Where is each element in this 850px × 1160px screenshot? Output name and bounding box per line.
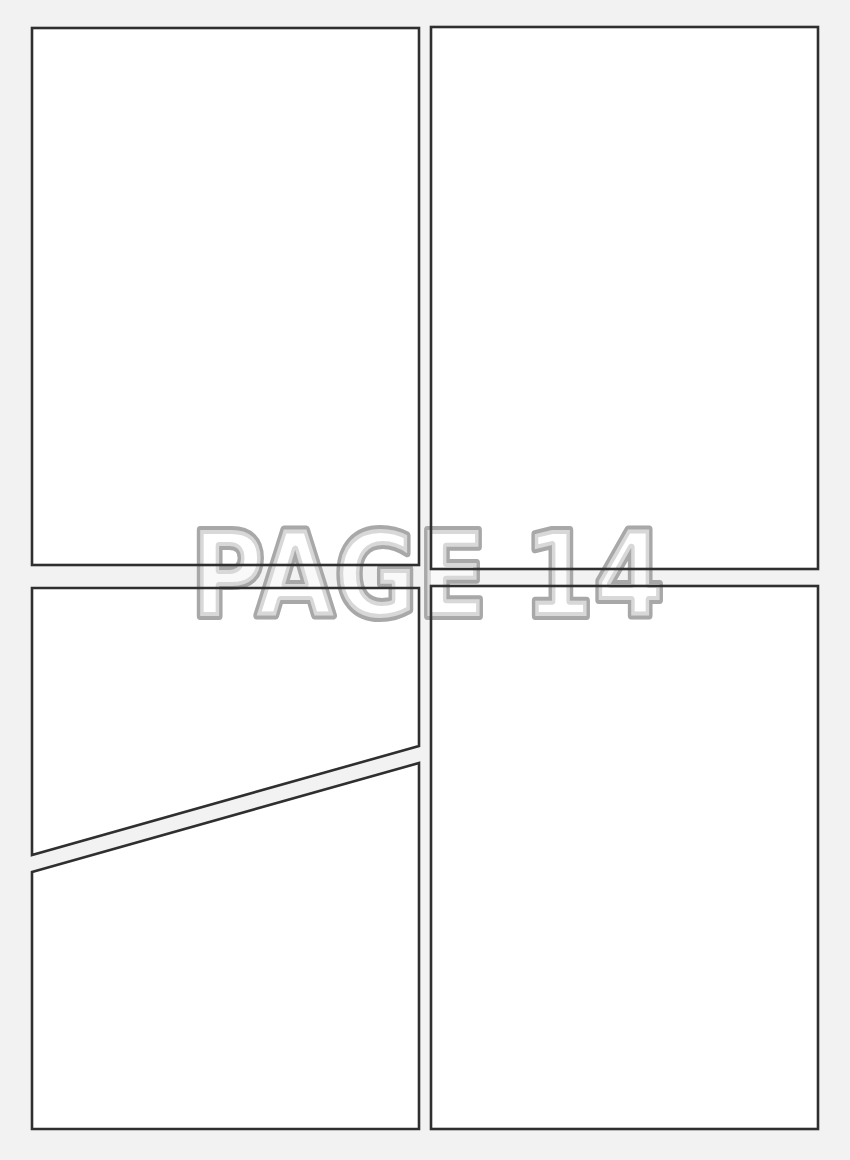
comic-page-template: PAGE 14 bbox=[0, 0, 850, 1160]
page-number-watermark: PAGE 14 bbox=[191, 506, 665, 644]
panel-bottom-right bbox=[431, 586, 818, 1129]
panel-top-left bbox=[32, 28, 419, 565]
panel-top-right bbox=[431, 27, 818, 569]
